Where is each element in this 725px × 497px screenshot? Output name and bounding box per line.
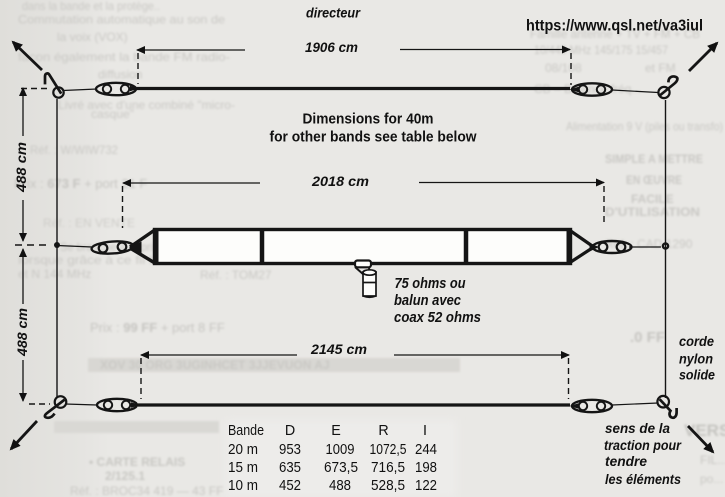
svg-text:tendre: tendre xyxy=(605,453,647,469)
svg-text:20 m: 20 m xyxy=(228,442,258,458)
svg-text:XOV 30 ORG 3UGINHCET 3JJEVUON: XOV 30 ORG 3UGINHCET 3JJEVUON AJ xyxy=(100,358,330,372)
svg-text:198: 198 xyxy=(415,460,437,476)
svg-text:Livré avec d'une combiné "micr: Livré avec d'une combiné "micro- xyxy=(58,98,235,112)
svg-text:488 cm: 488 cm xyxy=(14,308,30,357)
svg-text:solide: solide xyxy=(679,367,715,383)
svg-text:635: 635 xyxy=(279,460,301,476)
svg-text:Alimentation 9 V (piles ou tra: Alimentation 9 V (piles ou transfo) xyxy=(566,120,723,134)
svg-text:façon également la bande FM ra: façon également la bande FM radio- xyxy=(18,50,230,64)
svg-text:452: 452 xyxy=(279,478,301,494)
svg-text:10 m: 10 m xyxy=(228,478,258,494)
svg-text:VERS: VERS xyxy=(684,421,725,440)
svg-text:I: I xyxy=(423,423,427,439)
svg-text:1906 cm: 1906 cm xyxy=(305,39,358,55)
svg-text:Réf. : W/WIW732: Réf. : W/WIW732 xyxy=(30,143,118,157)
svg-text:488: 488 xyxy=(329,478,351,494)
svg-text:FIL...: FIL... xyxy=(700,453,725,467)
svg-text:1009: 1009 xyxy=(326,442,355,458)
svg-text:sens de la: sens de la xyxy=(605,420,670,436)
svg-text:Réf. : TOM27: Réf. : TOM27 xyxy=(200,268,272,282)
svg-text:15 m: 15 m xyxy=(228,460,258,476)
svg-text:244: 244 xyxy=(415,442,437,458)
svg-text:Bande: Bande xyxy=(228,423,264,439)
svg-text:nylon: nylon xyxy=(679,351,713,367)
svg-text:et N 144 MHz: et N 144 MHz xyxy=(18,267,91,281)
svg-text:122: 122 xyxy=(415,478,437,494)
svg-text:Réf. : BROC34 419 — 43 FF: Réf. : BROC34 419 — 43 FF xyxy=(70,484,223,497)
svg-text:716,5: 716,5 xyxy=(371,460,405,476)
svg-text:953: 953 xyxy=(279,442,301,458)
svg-text:diffusion: diffusion xyxy=(98,68,142,82)
svg-text:528,5: 528,5 xyxy=(371,478,405,494)
svg-text:• CARTE RELAIS: • CARTE RELAIS xyxy=(89,455,185,469)
svg-text:Dimensions for 40m: Dimensions for 40m xyxy=(303,111,434,128)
svg-text:2018 cm: 2018 cm xyxy=(311,173,369,189)
svg-text:casque": casque" xyxy=(91,107,134,121)
svg-text:balun avec: balun avec xyxy=(394,292,462,309)
svg-text:1072,5: 1072,5 xyxy=(370,442,407,458)
svg-text:les éléments: les éléments xyxy=(605,471,681,487)
svg-text:https://www.qsl.net/va3iul: https://www.qsl.net/va3iul xyxy=(526,18,703,35)
svg-text:75 ohms ou: 75 ohms ou xyxy=(395,275,466,292)
svg-text:coax 52 ohms: coax 52 ohms xyxy=(394,309,481,326)
svg-text:R: R xyxy=(378,423,388,439)
svg-text:2145 cm: 2145 cm xyxy=(310,341,367,357)
svg-text:for other bands see table belo: for other bands see table below xyxy=(270,129,477,146)
svg-text:08/108: 08/108 xyxy=(545,61,582,75)
svg-text:Prix : 99 FF + port 8 FF: Prix : 99 FF + port 8 FF xyxy=(90,320,225,335)
svg-text:et FM: et FM xyxy=(645,61,676,75)
svg-text:EN ŒUVRE: EN ŒUVRE xyxy=(626,173,682,187)
svg-text:D: D xyxy=(285,423,295,439)
svg-text:dans la bande et la protège..: dans la bande et la protège.. xyxy=(22,0,160,13)
svg-text:E: E xyxy=(331,423,341,439)
svg-text:2/125.1: 2/125.1 xyxy=(105,469,145,483)
svg-text:directeur: directeur xyxy=(306,5,361,21)
svg-text:corde: corde xyxy=(679,333,714,349)
svg-text:po...: po... xyxy=(700,472,723,486)
svg-text:673,5: 673,5 xyxy=(324,460,358,476)
svg-text:FACILE: FACILE xyxy=(631,192,674,206)
svg-text:D'UTILISATION: D'UTILISATION xyxy=(605,205,700,219)
svg-text:traction pour: traction pour xyxy=(604,437,682,453)
svg-text:SIMPLE A METTRE: SIMPLE A METTRE xyxy=(605,152,703,166)
svg-text:la voix (VOX): la voix (VOX) xyxy=(57,30,128,44)
svg-text:488 cm: 488 cm xyxy=(13,142,29,193)
svg-text:.0 FF: .0 FF xyxy=(630,329,665,346)
svg-text:Commutation automatique au son: Commutation automatique au son de xyxy=(18,13,225,27)
